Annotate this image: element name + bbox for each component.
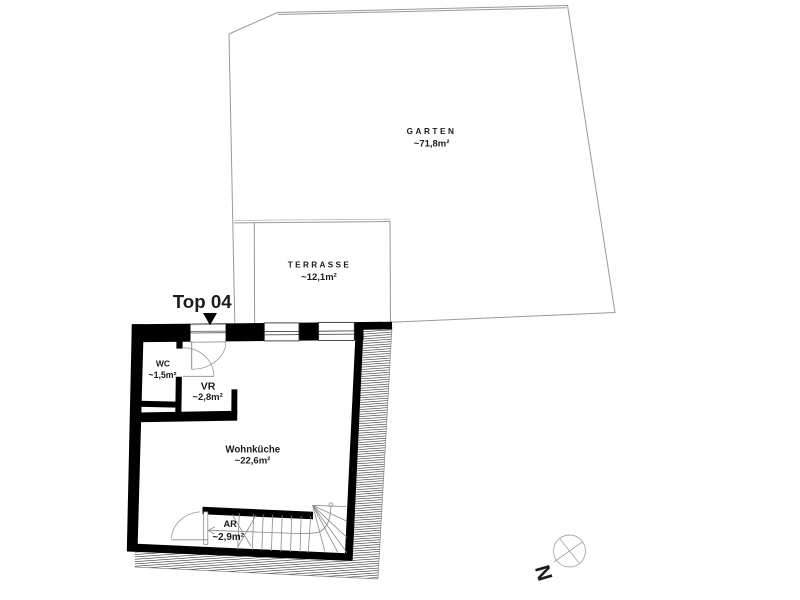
- svg-text:N: N: [530, 563, 556, 584]
- svg-text:Wohnküche: Wohnküche: [225, 444, 280, 455]
- svg-text:~2,8m²: ~2,8m²: [192, 392, 222, 403]
- svg-text:AR: AR: [223, 519, 237, 529]
- svg-text:TERRASSE: TERRASSE: [288, 261, 351, 270]
- svg-text:~1,5m²: ~1,5m²: [148, 370, 176, 380]
- svg-text:~71,8m²: ~71,8m²: [414, 139, 450, 150]
- svg-text:VR: VR: [201, 380, 216, 392]
- svg-text:~2,9m²: ~2,9m²: [212, 532, 244, 543]
- svg-text:~22,6m²: ~22,6m²: [235, 456, 271, 467]
- svg-text:GARTEN: GARTEN: [407, 127, 457, 136]
- svg-text:~12,1m²: ~12,1m²: [301, 272, 337, 283]
- svg-text:Top 04: Top 04: [173, 291, 232, 312]
- svg-text:WC: WC: [156, 359, 170, 369]
